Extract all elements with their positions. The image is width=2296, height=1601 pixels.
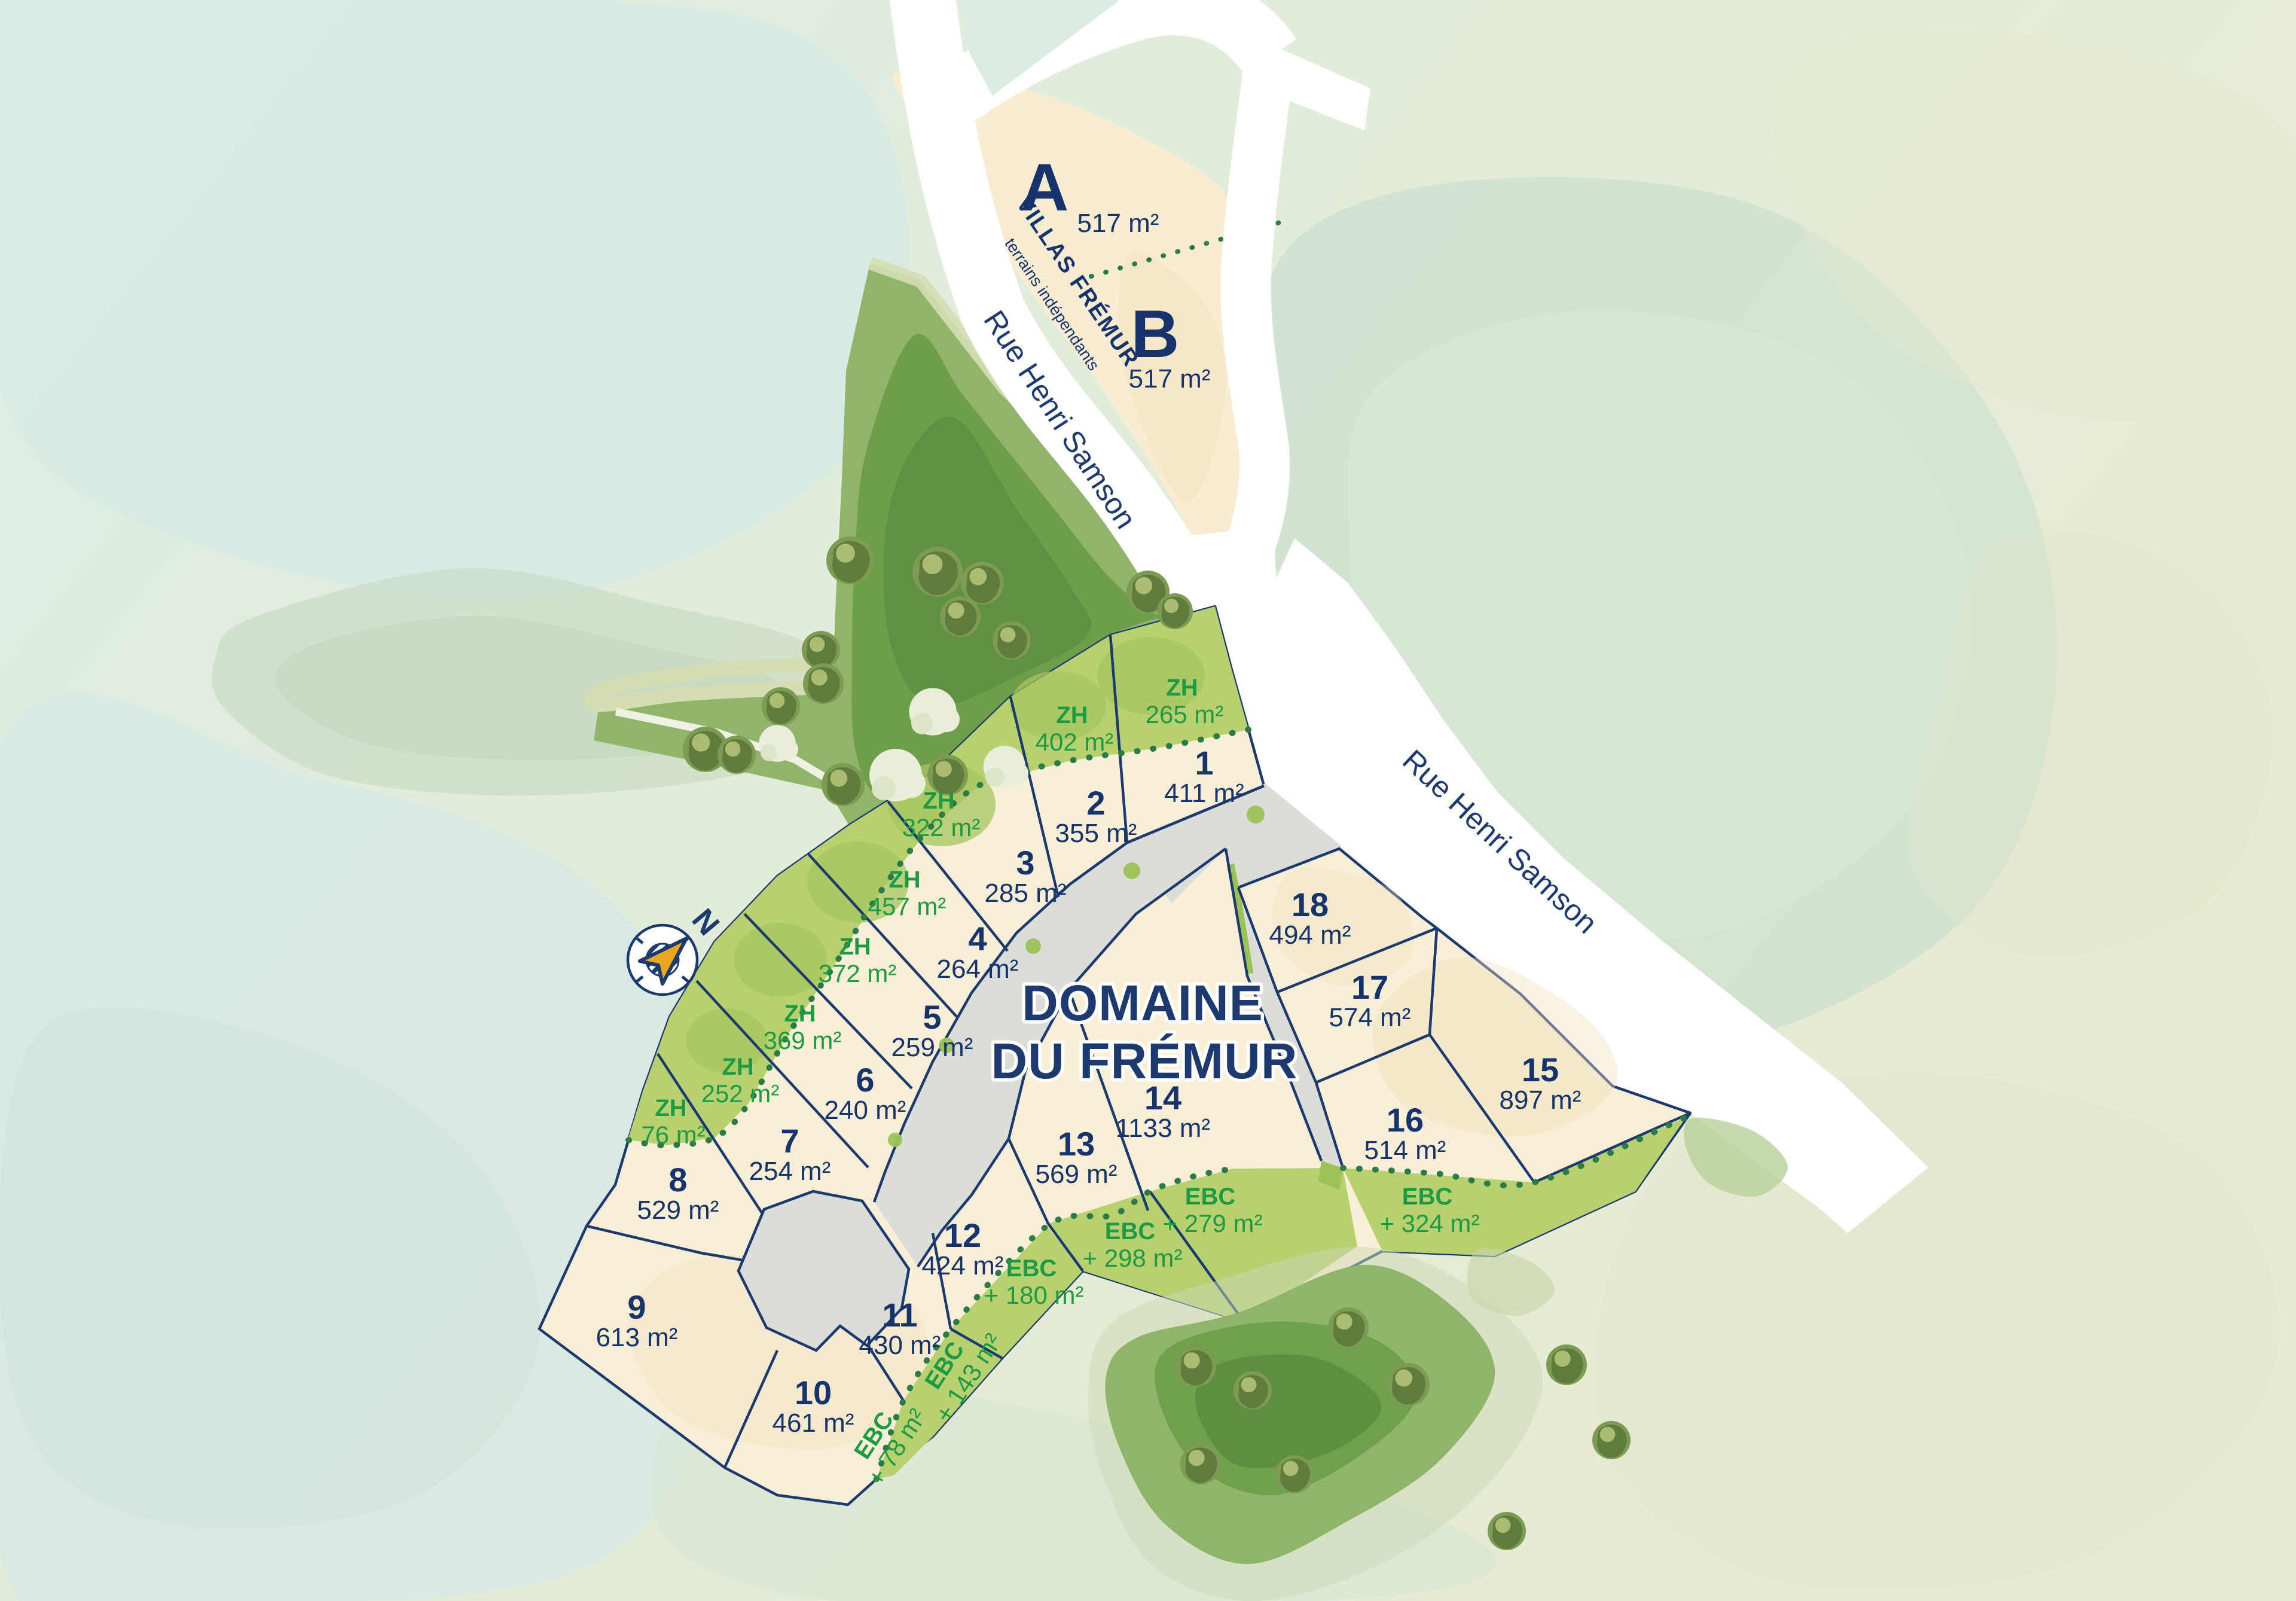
svg-text:ZH: ZH: [655, 1095, 686, 1121]
svg-text:369 m²: 369 m²: [764, 1026, 842, 1054]
svg-text:ZH: ZH: [923, 788, 954, 814]
svg-text:264 m²: 264 m²: [937, 954, 1019, 984]
svg-text:ZH: ZH: [784, 1001, 816, 1027]
svg-text:EBC: EBC: [1402, 1184, 1452, 1210]
svg-text:EBC: EBC: [1105, 1218, 1155, 1245]
svg-text:1: 1: [1195, 744, 1213, 782]
svg-text:ZH: ZH: [722, 1054, 753, 1080]
svg-text:15: 15: [1522, 1051, 1559, 1088]
svg-text:430 m²: 430 m²: [859, 1331, 941, 1360]
svg-text:6: 6: [856, 1061, 874, 1099]
svg-text:ZH: ZH: [1056, 702, 1088, 728]
svg-text:+ 180 m²: + 180 m²: [984, 1281, 1084, 1309]
svg-text:402 m²: 402 m²: [1036, 728, 1114, 756]
svg-text:569 m²: 569 m²: [1036, 1160, 1118, 1189]
svg-text:517 m²: 517 m²: [1129, 364, 1211, 394]
svg-text:897 m²: 897 m²: [1500, 1085, 1581, 1115]
svg-text:457 m²: 457 m²: [868, 892, 947, 920]
svg-text:411 m²: 411 m²: [1164, 779, 1244, 808]
svg-text:372 m²: 372 m²: [819, 959, 897, 987]
svg-text:18: 18: [1291, 886, 1329, 923]
svg-text:240 m²: 240 m²: [825, 1096, 906, 1125]
svg-text:494 m²: 494 m²: [1269, 920, 1351, 950]
svg-text:259 m²: 259 m²: [891, 1033, 973, 1062]
svg-text:9: 9: [627, 1288, 646, 1326]
svg-text:+ 279 m²: + 279 m²: [1163, 1209, 1263, 1237]
svg-text:3: 3: [1016, 844, 1034, 882]
svg-text:613 m²: 613 m²: [596, 1323, 678, 1352]
svg-text:ZH: ZH: [1166, 675, 1198, 701]
svg-text:16: 16: [1387, 1101, 1424, 1139]
svg-text:76 m²: 76 m²: [641, 1121, 705, 1149]
svg-text:17: 17: [1351, 968, 1388, 1006]
svg-text:322 m²: 322 m²: [902, 813, 981, 841]
svg-text:8: 8: [668, 1161, 687, 1199]
svg-text:10: 10: [795, 1374, 832, 1411]
svg-text:5: 5: [923, 998, 941, 1036]
svg-text:2: 2: [1086, 784, 1105, 822]
svg-text:+ 298 m²: + 298 m²: [1083, 1244, 1183, 1272]
svg-text:DU FRÉMUR: DU FRÉMUR: [991, 1033, 1298, 1089]
svg-text:EBC: EBC: [1006, 1255, 1057, 1282]
svg-text:+ 324 m²: + 324 m²: [1380, 1209, 1480, 1237]
svg-text:517 m²: 517 m²: [1077, 209, 1159, 238]
svg-text:424 m²: 424 m²: [922, 1251, 1004, 1280]
svg-text:254 m²: 254 m²: [749, 1157, 831, 1186]
svg-text:461 m²: 461 m²: [773, 1408, 854, 1438]
svg-text:285 m²: 285 m²: [985, 879, 1067, 908]
svg-text:529 m²: 529 m²: [637, 1196, 719, 1225]
svg-text:265 m²: 265 m²: [1146, 700, 1224, 728]
svg-text:12: 12: [944, 1216, 981, 1254]
svg-text:11: 11: [882, 1296, 917, 1334]
svg-text:574 m²: 574 m²: [1329, 1003, 1411, 1032]
svg-text:355 m²: 355 m²: [1055, 819, 1137, 848]
svg-text:7: 7: [780, 1122, 799, 1160]
svg-text:1133 m²: 1133 m²: [1116, 1114, 1210, 1143]
svg-text:252 m²: 252 m²: [701, 1079, 780, 1108]
svg-text:ZH: ZH: [889, 867, 920, 893]
svg-text:EBC: EBC: [1185, 1184, 1235, 1210]
svg-text:514 m²: 514 m²: [1364, 1136, 1446, 1165]
svg-text:ZH: ZH: [839, 934, 871, 960]
svg-text:13: 13: [1058, 1125, 1095, 1163]
svg-text:4: 4: [968, 920, 987, 957]
svg-text:DOMAINE: DOMAINE: [1022, 975, 1263, 1031]
